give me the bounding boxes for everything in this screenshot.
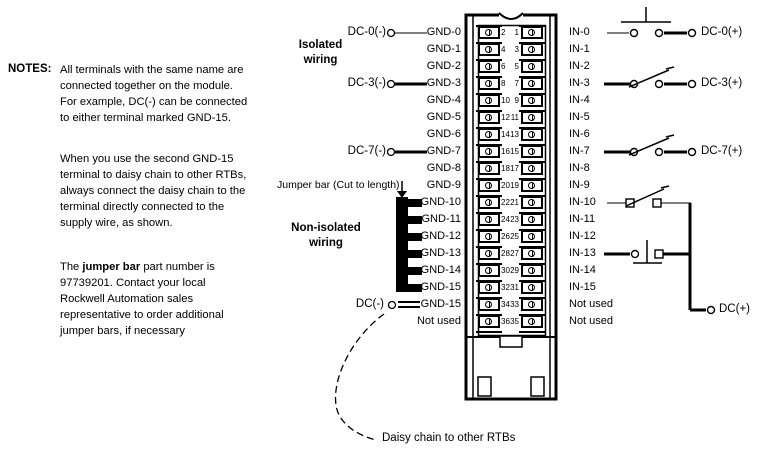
terminal-divider [476,246,502,248]
screw-terminal-icon [478,43,500,56]
daisy-chain-curve [336,314,384,440]
notes-paragraph-2: When you use the second GND-15 terminal … [60,151,272,231]
terminal-pin-number: 11 [504,113,519,123]
screw-terminal-icon [478,162,500,175]
terminal-right-label: IN-1 [569,42,664,57]
terminal-divider [476,263,502,265]
terminal-divider [519,178,545,180]
terminal-divider [519,110,545,112]
screw-terminal-icon [521,315,543,328]
terminal-left-label: GND-12 [340,229,461,244]
terminal-left-label: GND-5 [340,110,461,125]
screw-terminal-icon [521,60,543,73]
terminal-left-label: GND-8 [340,161,461,176]
terminal-left-label: GND-11 [340,212,461,227]
terminal-divider [476,280,502,282]
screw-terminal-icon [521,111,543,124]
screw-terminal-icon [521,264,543,277]
rtb-notch [499,11,523,19]
terminal-pin-number: 25 [504,232,519,242]
terminal-divider [476,161,502,163]
terminal-pin-number: 5 [504,62,519,72]
daisy-chain-label: Daisy chain to other RTBs [382,431,515,446]
terminal-right-label: IN-6 [569,127,664,142]
terminal-divider [519,280,545,282]
terminal-divider [519,297,545,299]
terminal-divider [519,59,545,61]
terminal-right-label: IN-10 [569,195,664,210]
terminal-divider [519,144,545,146]
screw-terminal-icon [478,247,500,260]
screw-terminal-icon [478,264,500,277]
screw-terminal-icon [478,94,500,107]
screw-terminal-icon [521,247,543,260]
screw-terminal-icon [478,111,500,124]
terminal-right-label: IN-8 [569,161,664,176]
terminal-divider [476,212,502,214]
screw-terminal-icon [478,26,500,39]
terminal-left-label: GND-7 [340,144,461,159]
terminal-pin-number: 31 [504,283,519,293]
screw-terminal-icon [521,77,543,90]
terminal-pin-number: 3 [504,45,519,55]
terminal-right-label: Not used [569,314,664,329]
terminal-pin-number: 33 [504,300,519,310]
dc7-plus-label: DC-7(+) [701,144,742,159]
terminal-divider [519,25,545,27]
screw-terminal-icon [478,281,500,294]
terminal-right-label: IN-2 [569,59,664,74]
terminal-divider [476,25,502,27]
terminal-left-label: GND-14 [340,263,461,278]
terminal-pin-number: 1 [504,28,519,38]
terminal-left-label: GND-0 [340,25,461,40]
screw-terminal-icon [521,162,543,175]
screw-terminal-icon [478,196,500,209]
terminal-divider [519,331,545,333]
terminal-pin-number: 35 [504,317,519,327]
screw-terminal-icon [478,298,500,311]
dc3-plus-label: DC-3(+) [701,76,742,91]
terminal-pin-number: 13 [504,130,519,140]
terminal-divider [476,178,502,180]
terminal-left-label: GND-4 [340,93,461,108]
screw-terminal-icon [478,213,500,226]
terminal-divider [476,127,502,129]
terminal-left-label: GND-10 [340,195,461,210]
terminal-left-label: GND-2 [340,59,461,74]
terminal-divider [476,76,502,78]
terminal-right-label: Not used [569,297,664,312]
notes-paragraph-1: All terminals with the same name are con… [60,62,272,126]
screw-terminal-icon [478,315,500,328]
terminal-divider [519,229,545,231]
jumper-bar-emphasis: jumper bar [82,261,140,273]
terminal-divider [476,331,502,333]
terminal-divider [476,110,502,112]
screw-terminal-icon [521,145,543,158]
terminal-right-label: IN-4 [569,93,664,108]
dc0-plus-label: DC-0(+) [701,25,742,40]
terminal-left-label: GND-6 [340,127,461,142]
terminal-left-label: GND-3 [340,76,461,91]
terminal-divider [476,144,502,146]
screw-terminal-icon [521,43,543,56]
wiring-diagram: NOTES: All terminals with the same name … [0,0,761,463]
terminal-divider [476,314,502,316]
terminal-pin-number: 21 [504,198,519,208]
terminal-left-label: GND-15 [340,297,461,312]
terminal-divider [476,42,502,44]
terminal-pin-number: 29 [504,266,519,276]
terminal-divider [519,161,545,163]
terminal-right-label: IN-5 [569,110,664,125]
terminal-pin-number: 9 [504,96,519,106]
terminal-right-label: IN-7 [569,144,664,159]
terminal-right-label: IN-0 [569,25,664,40]
terminal-right-label: IN-9 [569,178,664,193]
terminal-left-label: GND-1 [340,42,461,57]
terminal-left-label: GND-15 [340,280,461,295]
terminal-pin-number: 23 [504,215,519,225]
terminal-pin-number: 7 [504,79,519,89]
terminal-divider [519,246,545,248]
terminal-pin-number: 19 [504,181,519,191]
terminal-divider [519,195,545,197]
dc-plus-bus [690,203,715,314]
screw-terminal-icon [521,213,543,226]
terminal-divider [476,229,502,231]
rtb-bottom-section [478,336,544,396]
terminal-divider [519,127,545,129]
terminal-right-label: IN-13 [569,246,664,261]
screw-terminal-icon [521,196,543,209]
screw-terminal-icon [521,179,543,192]
terminal-pin-number: 27 [504,249,519,259]
screw-terminal-icon [478,128,500,141]
terminal-left-label: Not used [340,314,461,329]
terminal-right-label: IN-11 [569,212,664,227]
screw-terminal-icon [521,26,543,39]
terminal-divider [476,59,502,61]
terminal-pin-number: 17 [504,164,519,174]
screw-terminal-icon [521,128,543,141]
terminal-divider [519,93,545,95]
screw-terminal-icon [478,77,500,90]
screw-terminal-icon [521,230,543,243]
screw-terminal-icon [521,94,543,107]
terminal-divider [519,314,545,316]
terminal-right-label: IN-14 [569,263,664,278]
terminal-divider [519,42,545,44]
screw-terminal-icon [521,298,543,311]
notes-label: NOTES: [8,62,51,77]
screw-terminal-icon [478,145,500,158]
terminal-divider [476,93,502,95]
terminal-divider [519,212,545,214]
screw-terminal-icon [478,179,500,192]
terminal-right-label: IN-15 [569,280,664,295]
terminal-right-label: IN-3 [569,76,664,91]
terminal-divider [476,195,502,197]
terminal-divider [476,297,502,299]
terminal-left-label: GND-9 [340,178,461,193]
terminal-left-label: GND-13 [340,246,461,261]
dc-plus-label: DC(+) [719,302,750,317]
terminal-divider [519,263,545,265]
terminal-right-label: IN-12 [569,229,664,244]
notes-paragraph-3: The jumper bar part number is 97739201. … [60,259,272,339]
screw-terminal-icon [478,60,500,73]
screw-terminal-icon [478,230,500,243]
terminal-divider [519,76,545,78]
screw-terminal-icon [521,281,543,294]
terminal-pin-number: 15 [504,147,519,157]
